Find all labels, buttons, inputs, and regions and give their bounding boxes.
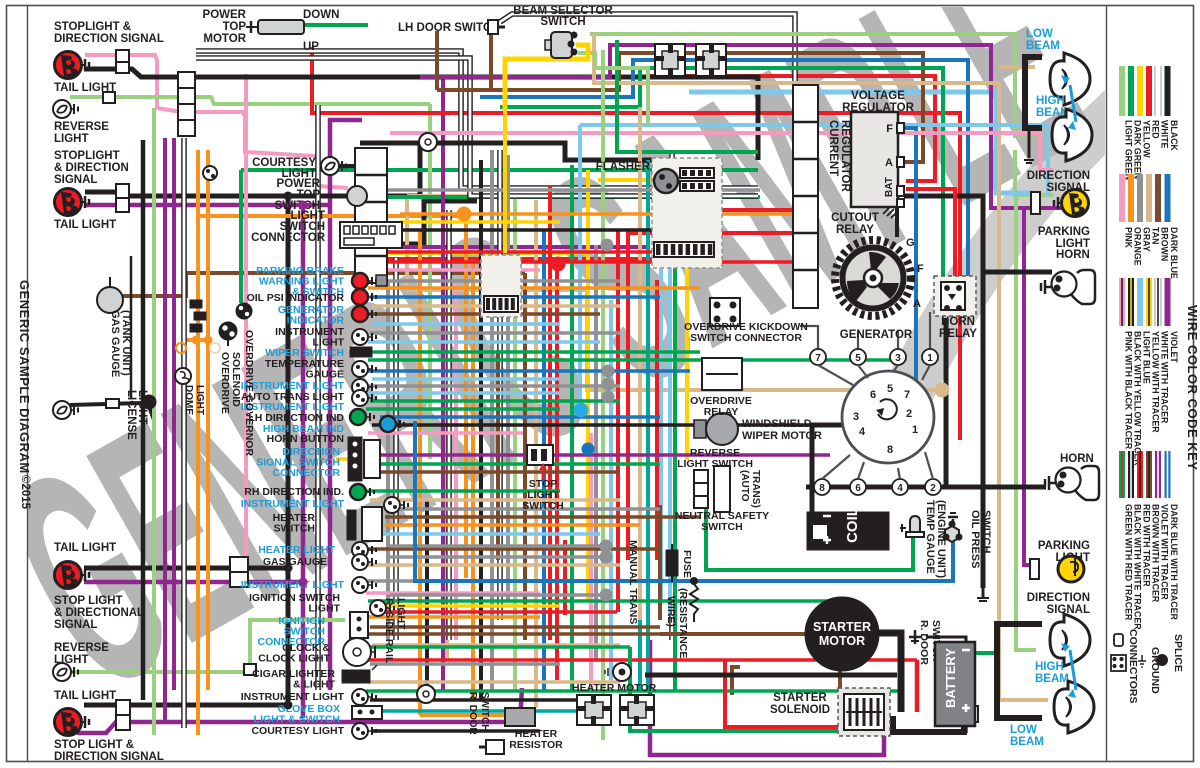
svg-text:LIGHT & SWITCH: LIGHT & SWITCH bbox=[254, 714, 340, 726]
svg-text:COIL: COIL bbox=[844, 507, 861, 543]
svg-text:SWITCH: SWITCH bbox=[479, 692, 490, 731]
svg-text:5: 5 bbox=[887, 383, 893, 395]
svg-text:REGULATOR: REGULATOR bbox=[839, 120, 851, 192]
svg-text:FUSE: FUSE bbox=[681, 550, 693, 578]
svg-text:LOW: LOW bbox=[1010, 724, 1037, 736]
svg-text:1: 1 bbox=[927, 353, 933, 364]
svg-text:LIGHT: LIGHT bbox=[54, 133, 89, 145]
svg-text:HORN: HORN bbox=[1056, 249, 1090, 261]
svg-text:BAT: BAT bbox=[884, 177, 895, 197]
svg-text:SIGNAL: SIGNAL bbox=[54, 174, 97, 186]
svg-text:R. DOOR: R. DOOR bbox=[467, 692, 478, 736]
svg-text:HORN: HORN bbox=[1060, 453, 1094, 465]
svg-text:1: 1 bbox=[912, 424, 918, 436]
svg-text:(RESISTANCE: (RESISTANCE bbox=[677, 588, 689, 658]
svg-text:SWITCH: SWITCH bbox=[522, 500, 563, 512]
svg-text:F: F bbox=[917, 263, 924, 275]
svg-text:GAS GAUGE: GAS GAUGE bbox=[263, 556, 327, 568]
svg-text:INSTRUMENT LIGHT: INSTRUMENT LIGHT bbox=[241, 579, 345, 591]
svg-text:G: G bbox=[906, 237, 915, 249]
svg-text:TAN: TAN bbox=[1151, 227, 1161, 244]
svg-text:CONNECTOR: CONNECTOR bbox=[251, 232, 326, 244]
svg-text:DIRECTION SIGNAL: DIRECTION SIGNAL bbox=[54, 33, 164, 45]
svg-text:HIGH: HIGH bbox=[1035, 661, 1064, 673]
svg-text:PARKING: PARKING bbox=[1038, 540, 1090, 552]
svg-text:OVERDRIVE: OVERDRIVE bbox=[219, 352, 231, 414]
svg-text:STOP LIGHT: STOP LIGHT bbox=[54, 595, 123, 607]
svg-text:6: 6 bbox=[855, 483, 861, 494]
svg-text:PINK WITH BLACK TRACER: PINK WITH BLACK TRACER bbox=[1124, 331, 1134, 450]
svg-text:MOTOR: MOTOR bbox=[203, 33, 246, 45]
svg-text:8: 8 bbox=[819, 483, 825, 494]
svg-text:SWITCH: SWITCH bbox=[274, 523, 315, 535]
svg-text:DARK GREEN: DARK GREEN bbox=[1133, 120, 1143, 179]
svg-text:DARK BLUE WITH TRACER: DARK BLUE WITH TRACER bbox=[1169, 504, 1179, 620]
svg-text:SWITCH CONNECTOR: SWITCH CONNECTOR bbox=[690, 332, 802, 344]
svg-text:LIGHT BLUE: LIGHT BLUE bbox=[1142, 331, 1152, 384]
svg-text:GENERIC SAMPLE DIAGRAM: GENERIC SAMPLE DIAGRAM bbox=[17, 280, 32, 474]
svg-text:MOTOR: MOTOR bbox=[819, 634, 865, 648]
svg-text:5: 5 bbox=[855, 353, 861, 364]
svg-text:WIPER MOTOR: WIPER MOTOR bbox=[742, 430, 822, 442]
svg-text:BLACK: BLACK bbox=[1169, 120, 1179, 151]
svg-text:POWER: POWER bbox=[203, 9, 247, 21]
svg-text:LIGHT: LIGHT bbox=[395, 598, 407, 630]
svg-text:REVERSE: REVERSE bbox=[54, 642, 109, 654]
svg-text:GRAY: GRAY bbox=[1142, 227, 1152, 252]
svg-text:DOWN: DOWN bbox=[303, 9, 339, 21]
svg-text:BEAM: BEAM bbox=[1035, 673, 1069, 685]
svg-text:INSTRUMENT LIGHT: INSTRUMENT LIGHT bbox=[241, 498, 345, 510]
svg-text:STOPLIGHT &: STOPLIGHT & bbox=[54, 21, 131, 33]
svg-text:OIL PRESS: OIL PRESS bbox=[969, 510, 981, 568]
svg-text:R. SIDE RAIL: R. SIDE RAIL bbox=[383, 598, 395, 664]
svg-text:TRANS): TRANS) bbox=[750, 470, 761, 508]
svg-text:©2015: ©2015 bbox=[19, 475, 31, 510]
svg-text:LICENSE: LICENSE bbox=[125, 390, 137, 440]
svg-text:RESISTOR: RESISTOR bbox=[509, 739, 563, 751]
svg-text:UP: UP bbox=[303, 41, 319, 53]
svg-text:LIGHT: LIGHT bbox=[194, 385, 205, 415]
svg-text:3: 3 bbox=[853, 411, 859, 423]
svg-text:HEATER LIGHT: HEATER LIGHT bbox=[258, 544, 335, 556]
svg-text:HORN BUTTON: HORN BUTTON bbox=[267, 433, 344, 445]
svg-text:LIGHT: LIGHT bbox=[309, 603, 341, 615]
svg-text:RELAY: RELAY bbox=[836, 224, 874, 236]
svg-text:WINDSHIELD: WINDSHIELD bbox=[742, 418, 812, 430]
svg-text:WHITE: WHITE bbox=[1160, 120, 1170, 148]
svg-text:WHITE WITH TRACER: WHITE WITH TRACER bbox=[1160, 331, 1170, 424]
svg-text:RH DIRECTION IND.: RH DIRECTION IND. bbox=[244, 486, 344, 498]
svg-text:DIRECTION: DIRECTION bbox=[1027, 592, 1090, 604]
svg-text:7: 7 bbox=[815, 353, 821, 364]
svg-text:BEAM: BEAM bbox=[1026, 40, 1060, 52]
svg-text:GENERATOR: GENERATOR bbox=[840, 329, 913, 341]
svg-text:SIGNAL: SIGNAL bbox=[54, 619, 97, 631]
svg-text:CUTOUT: CUTOUT bbox=[831, 212, 879, 224]
svg-text:CURRENT: CURRENT bbox=[827, 120, 839, 176]
svg-text:RED: RED bbox=[1151, 120, 1161, 139]
svg-text:A: A bbox=[913, 298, 921, 310]
svg-text:SWITCH: SWITCH bbox=[701, 521, 742, 533]
svg-text:SOLENOID: SOLENOID bbox=[770, 704, 830, 716]
svg-text:(TANK UNIT): (TANK UNIT) bbox=[120, 310, 132, 376]
svg-text:GAS GAUGE: GAS GAUGE bbox=[109, 310, 121, 377]
svg-text:4: 4 bbox=[897, 483, 903, 494]
svg-text:PARKING: PARKING bbox=[1038, 226, 1090, 238]
svg-text:BROWN: BROWN bbox=[1160, 227, 1170, 261]
svg-text:BLACK WITH YELLOW TRACER: BLACK WITH YELLOW TRACER bbox=[1133, 331, 1143, 466]
svg-text:YELLOW WITH TRACER: YELLOW WITH TRACER bbox=[1151, 331, 1161, 433]
svg-text:OVERDRIVE GOVERNOR: OVERDRIVE GOVERNOR bbox=[243, 330, 255, 456]
svg-text:RELAY: RELAY bbox=[704, 406, 739, 418]
svg-text:RED WITH TRACER: RED WITH TRACER bbox=[1142, 504, 1152, 587]
svg-text:SWITCH: SWITCH bbox=[980, 510, 992, 553]
svg-text:ORANGE: ORANGE bbox=[1133, 227, 1143, 266]
svg-text:OIL PSI INDICATOR: OIL PSI INDICATOR bbox=[247, 292, 345, 304]
svg-text:BATTERY: BATTERY bbox=[943, 648, 958, 708]
svg-text:SPLICE: SPLICE bbox=[1172, 634, 1184, 672]
svg-text:3: 3 bbox=[895, 353, 901, 364]
svg-text:(AUTO: (AUTO bbox=[739, 470, 750, 502]
svg-text:DIRECTION: DIRECTION bbox=[1027, 170, 1090, 182]
svg-text:F: F bbox=[886, 123, 893, 135]
svg-text:INSTRUMENT LIGHT: INSTRUMENT LIGHT bbox=[241, 691, 345, 703]
svg-text:6: 6 bbox=[870, 389, 876, 401]
svg-text:PINK: PINK bbox=[1124, 227, 1134, 249]
svg-text:TOP: TOP bbox=[223, 21, 247, 33]
svg-text:GREEN WITH RED TRACER: GREEN WITH RED TRACER bbox=[1124, 504, 1134, 621]
svg-text:STARTER: STARTER bbox=[813, 620, 871, 634]
svg-text:BROWN WITH TRACER: BROWN WITH TRACER bbox=[1151, 504, 1161, 603]
svg-text:TAIL LIGHT: TAIL LIGHT bbox=[54, 219, 116, 231]
svg-text:CONNECTORS: CONNECTORS bbox=[1127, 629, 1139, 703]
svg-text:COURTESY LIGHT: COURTESY LIGHT bbox=[251, 725, 344, 737]
svg-text:DOME: DOME bbox=[183, 385, 194, 415]
svg-text:VIOLET: VIOLET bbox=[1169, 331, 1179, 363]
svg-text:8: 8 bbox=[887, 444, 893, 456]
svg-text:GAUGE: GAUGE bbox=[305, 369, 344, 381]
svg-text:LIGHT GREEN: LIGHT GREEN bbox=[1124, 120, 1134, 180]
svg-text:GROUND: GROUND bbox=[1149, 647, 1161, 694]
svg-text:TAIL LIGHT: TAIL LIGHT bbox=[54, 690, 116, 702]
svg-text:YELLOW: YELLOW bbox=[1142, 120, 1152, 158]
svg-text:HIGH: HIGH bbox=[1036, 95, 1065, 107]
svg-text:WIRE COLOR CODE KEY: WIRE COLOR CODE KEY bbox=[1185, 305, 1200, 471]
svg-text:2: 2 bbox=[930, 483, 936, 494]
svg-text:RELAY: RELAY bbox=[939, 328, 977, 340]
svg-text:& DIRECTION: & DIRECTION bbox=[54, 162, 129, 174]
svg-text:VIOLET WITH TRACER: VIOLET WITH TRACER bbox=[1160, 504, 1170, 600]
svg-text:TAIL LIGHT: TAIL LIGHT bbox=[54, 542, 116, 554]
svg-text:TEMP GAUGE: TEMP GAUGE bbox=[924, 500, 936, 574]
svg-text:HORN: HORN bbox=[941, 316, 975, 328]
svg-text:LH DOOR SWITCH: LH DOOR SWITCH bbox=[398, 22, 500, 34]
svg-text:R. DOOR: R. DOOR bbox=[918, 620, 930, 665]
svg-text:REVERSE: REVERSE bbox=[54, 121, 109, 133]
svg-text:7: 7 bbox=[904, 389, 910, 401]
svg-text:STOP LIGHT &: STOP LIGHT & bbox=[54, 739, 134, 751]
svg-text:MANUAL TRANS: MANUAL TRANS bbox=[627, 540, 639, 624]
svg-text:BEAM: BEAM bbox=[1010, 736, 1044, 748]
svg-text:BLACK WITH WHITE TRACER: BLACK WITH WHITE TRACER bbox=[1133, 504, 1143, 630]
svg-text:INDICATOR: INDICATOR bbox=[287, 315, 345, 327]
svg-text:& LIGHT: & LIGHT bbox=[293, 679, 336, 691]
svg-text:& DIRECTIONAL: & DIRECTIONAL bbox=[54, 607, 144, 619]
svg-text:SWITCH: SWITCH bbox=[540, 16, 585, 28]
svg-text:DARK BLUE: DARK BLUE bbox=[1169, 227, 1179, 279]
svg-text:CLOCK LIGHT: CLOCK LIGHT bbox=[258, 653, 330, 665]
svg-text:4: 4 bbox=[859, 426, 866, 438]
svg-text:STARTER: STARTER bbox=[773, 692, 827, 704]
svg-text:FLASHER: FLASHER bbox=[596, 161, 651, 173]
svg-text:SOLENOID: SOLENOID bbox=[230, 352, 242, 407]
svg-text:VOLTAGE: VOLTAGE bbox=[851, 90, 905, 102]
svg-text:2: 2 bbox=[906, 408, 912, 420]
svg-text:HEATER MOTOR: HEATER MOTOR bbox=[572, 682, 657, 694]
svg-text:CONNECTOR: CONNECTOR bbox=[273, 467, 341, 479]
svg-text:A: A bbox=[885, 157, 893, 169]
svg-text:LOW: LOW bbox=[1026, 28, 1053, 40]
svg-text:WIRE): WIRE) bbox=[665, 596, 677, 627]
svg-text:STOPLIGHT: STOPLIGHT bbox=[54, 150, 120, 162]
